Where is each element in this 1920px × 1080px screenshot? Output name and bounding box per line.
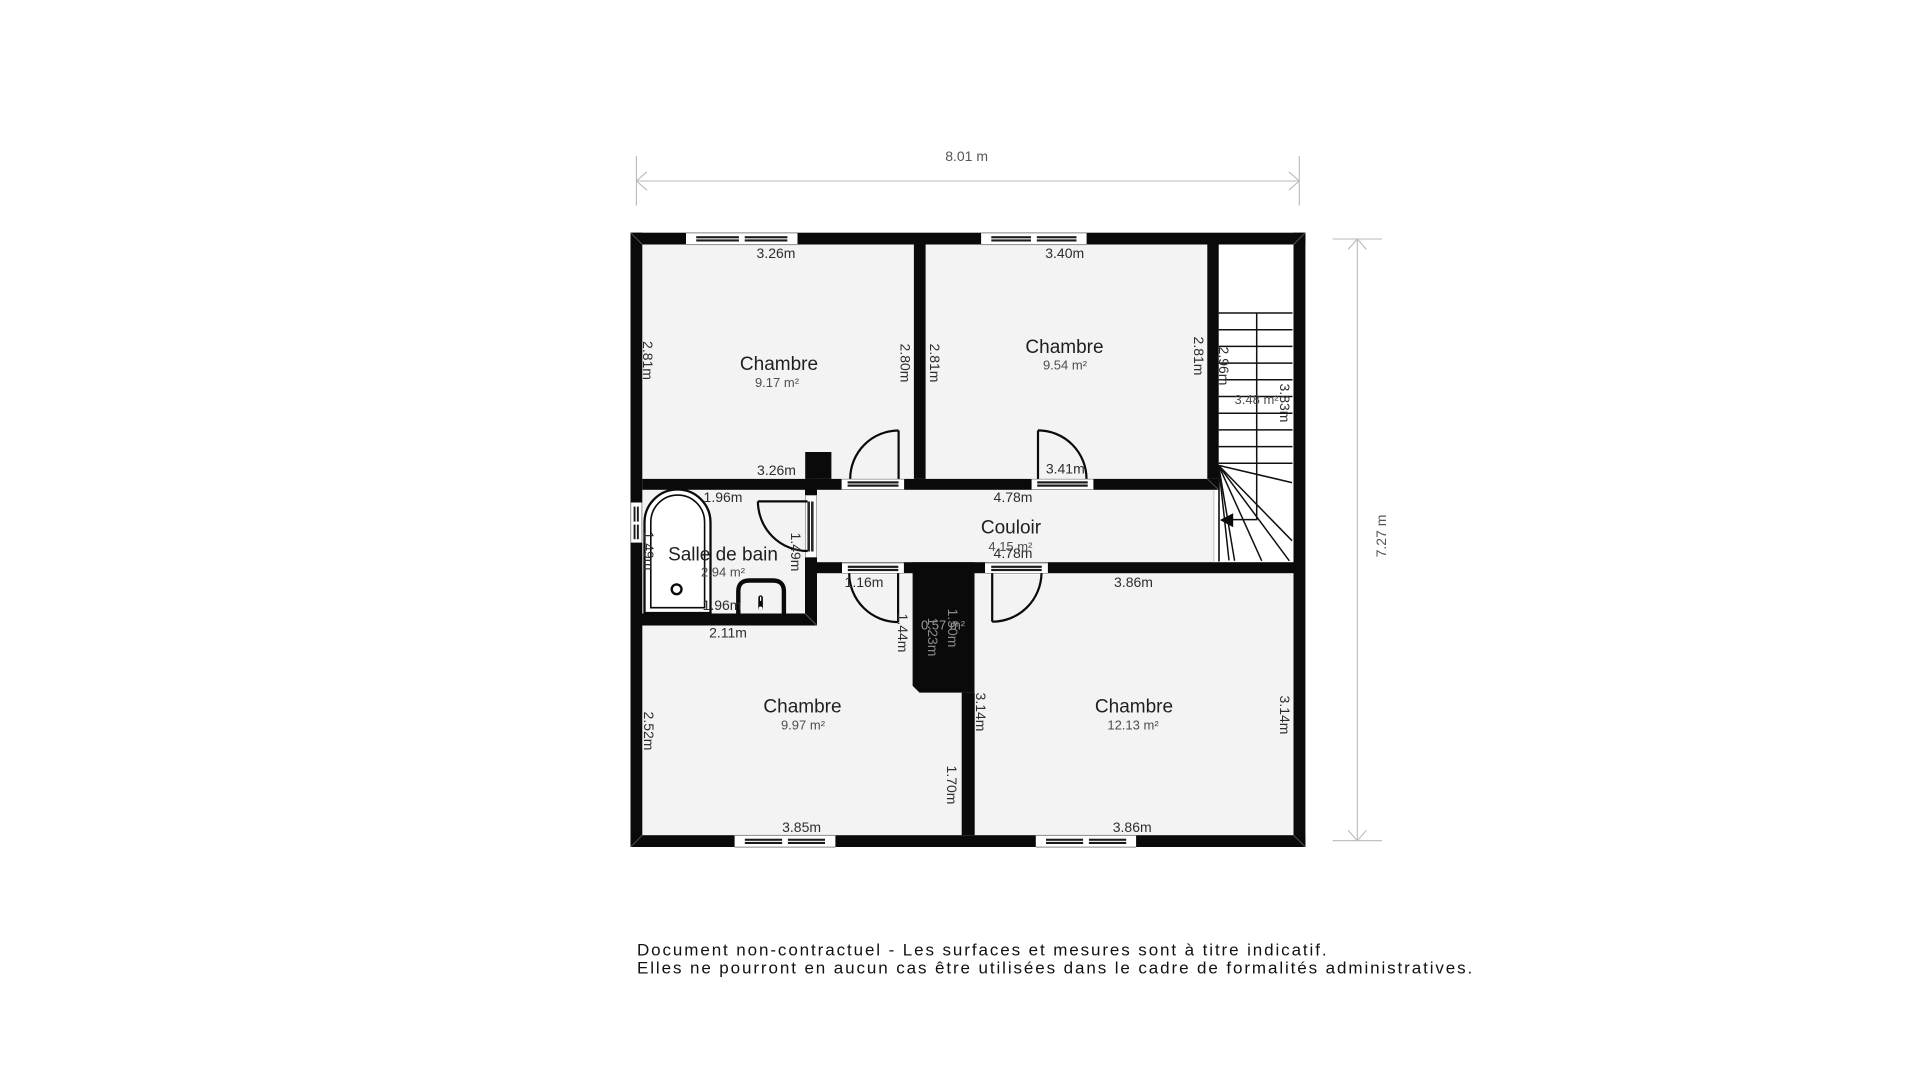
svg-text:1.70m: 1.70m [944, 766, 960, 805]
svg-text:1.96m: 1.96m [703, 597, 742, 613]
svg-text:3.26m: 3.26m [757, 462, 796, 478]
svg-text:9.54 m²: 9.54 m² [1043, 357, 1088, 372]
svg-text:8.01 m: 8.01 m [945, 148, 988, 164]
svg-text:Salle de bain: Salle de bain [668, 545, 778, 566]
svg-text:3.14m: 3.14m [1277, 696, 1293, 735]
svg-text:2.11m: 2.11m [709, 625, 747, 641]
svg-text:3.83m: 3.83m [1277, 384, 1293, 423]
svg-text:3.86m: 3.86m [1113, 819, 1152, 835]
svg-text:1.49m: 1.49m [788, 533, 804, 572]
svg-text:1.50m: 1.50m [945, 609, 961, 648]
svg-text:9.97 m²: 9.97 m² [781, 718, 826, 733]
svg-text:2.81m: 2.81m [1191, 337, 1207, 376]
svg-text:2.81m: 2.81m [927, 344, 943, 383]
svg-text:Couloir: Couloir [981, 518, 1042, 539]
svg-text:2.94 m²: 2.94 m² [701, 565, 746, 580]
svg-text:1.96m: 1.96m [704, 489, 743, 505]
svg-text:4.78m: 4.78m [994, 489, 1033, 505]
svg-text:12.13 m²: 12.13 m² [1107, 718, 1159, 733]
svg-text:2.52m: 2.52m [641, 712, 657, 751]
svg-text:2.81m: 2.81m [640, 341, 656, 380]
svg-text:3.48 m²: 3.48 m² [1235, 392, 1280, 407]
svg-text:Elles ne pourront en aucun cas: Elles ne pourront en aucun cas être util… [637, 959, 1474, 978]
svg-text:3.26m: 3.26m [757, 245, 796, 261]
svg-text:1.44m: 1.44m [895, 614, 911, 653]
svg-text:2.96m: 2.96m [1216, 347, 1232, 386]
svg-text:9.17 m²: 9.17 m² [755, 375, 800, 390]
svg-text:3.40m: 3.40m [1045, 245, 1084, 261]
svg-text:Chambre: Chambre [763, 697, 841, 718]
svg-text:2.80m: 2.80m [898, 344, 914, 383]
svg-text:3.14m: 3.14m [973, 693, 989, 732]
svg-text:Chambre: Chambre [1025, 337, 1103, 358]
svg-text:Document non-contractuel - Les: Document non-contractuel - Les surfaces … [637, 941, 1328, 960]
svg-text:1.16m: 1.16m [845, 574, 884, 590]
svg-text:3.41m: 3.41m [1046, 460, 1085, 476]
svg-text:Chambre: Chambre [740, 354, 818, 375]
svg-text:Chambre: Chambre [1095, 697, 1173, 718]
svg-text:1.49m: 1.49m [641, 532, 657, 571]
svg-text:4.78m: 4.78m [994, 545, 1033, 561]
svg-text:1.23m: 1.23m [925, 618, 941, 657]
svg-text:7.27 m: 7.27 m [1373, 515, 1389, 558]
svg-text:3.86m: 3.86m [1114, 574, 1153, 590]
svg-text:3.85m: 3.85m [782, 819, 821, 835]
